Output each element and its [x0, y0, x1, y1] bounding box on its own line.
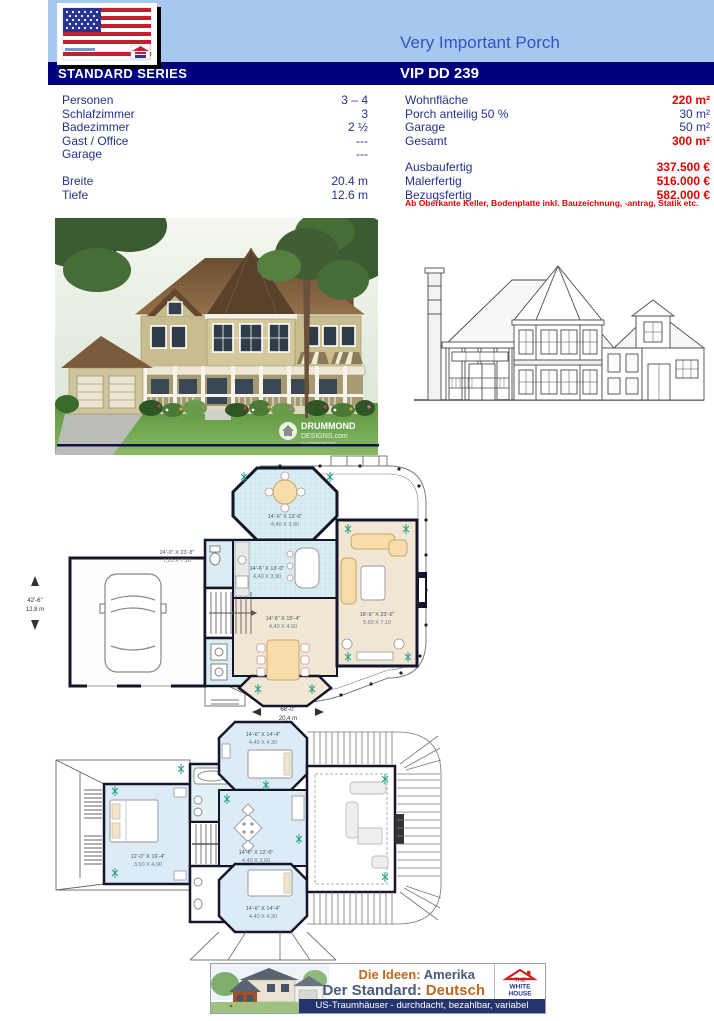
nook-dim-metric: 4,40 X 3,90 — [271, 522, 299, 528]
spec-row: Malerfertig516.000 € — [405, 175, 710, 189]
page-title: Very Important Porch — [330, 33, 630, 53]
series-label: STANDARD SERIES — [58, 62, 187, 85]
spec-value: 337.500 € — [657, 161, 710, 175]
series-bar: STANDARD SERIES VIP DD 239 — [48, 62, 714, 85]
master-dim-imperial: 12'-0" X 16'-4" — [131, 854, 166, 860]
kitchen-dim-metric: 4,40 X 3,90 — [253, 574, 281, 580]
dining-dim-metric: 4,40 X 4,60 — [269, 624, 297, 630]
footer-line1: Die Ideen: Amerika — [358, 967, 475, 982]
bedroom-top-dim-imperial: 14'-6" X 14'-4" — [246, 732, 281, 738]
watermark-line2: DESIGNS.com — [301, 433, 348, 440]
idea-value: Amerika — [421, 967, 475, 982]
footer-tagline: US-Traumhäuser - durchdacht, bezahlbar, … — [299, 999, 545, 1013]
nook-dim-imperial: 14'-6" X 13'-0" — [268, 514, 303, 520]
master-dim-metric: 3,60 X 4,90 — [134, 862, 162, 868]
spec-value: 220 m² — [672, 94, 710, 108]
spec-row: Schlafzimmer3 — [62, 108, 368, 122]
lower-roof-lines — [190, 932, 336, 960]
spec-label: Gesamt — [405, 135, 447, 149]
footer-line2: Der Standard: Deutsch — [322, 982, 485, 999]
dining-table-icon — [257, 640, 309, 680]
car-icon — [100, 574, 166, 672]
spec-row: Personen3 – 4 — [62, 94, 368, 108]
spec-row: Wohnfläche220 m² — [405, 94, 710, 108]
living-dim-imperial: 18'-6" X 23'-6" — [360, 612, 395, 618]
spec-value: 50 m² — [679, 121, 710, 135]
spec-value: 300 m² — [672, 135, 710, 149]
dining-dim-imperial: 14'-6" X 15'-4" — [266, 616, 301, 622]
spec-label: Garage — [405, 121, 445, 135]
spec-row: Breite20.4 m — [62, 175, 368, 189]
spec-value: --- — [356, 148, 368, 162]
us-flag-logo — [57, 3, 157, 65]
us-flag-icon — [57, 3, 157, 65]
spec-row: Garage--- — [62, 148, 368, 162]
bed-bottom-icon — [248, 870, 292, 896]
spec-row: Porch anteilig 50 %30 m² — [405, 108, 710, 122]
garage-dim-metric: 7,20 X 7,10 — [163, 558, 191, 564]
spec-row: Badezimmer2 ½ — [62, 121, 368, 135]
spec-label: Ausbaufertig — [405, 161, 472, 175]
watermark-line1: DRUMMOND — [301, 421, 356, 431]
spec-row: Garage50 m² — [405, 121, 710, 135]
spec-label: Porch anteilig 50 % — [405, 108, 508, 122]
spec-row: Ausbaufertig337.500 € — [405, 161, 710, 175]
width-imperial: 42'-6" — [27, 598, 42, 604]
standard-label: Der Standard: — [322, 982, 421, 999]
spec-row: Gast / Office--- — [62, 135, 368, 149]
mini-white-house-icon — [131, 45, 150, 59]
spec-label: Malerfertig — [405, 175, 462, 189]
length-imperial: 68'-0" — [280, 707, 295, 713]
width-dimension: 42'-6" 12,8 m — [26, 576, 44, 630]
floor-plan-level1: 24'-0" X 23'-8" 7,20 X 7,10 14'-6" X 13'… — [18, 444, 440, 726]
spec-label: Wohnfläche — [405, 94, 468, 108]
price-footnote: Ab Oberkante Keller, Bodenplatte inkl. B… — [405, 198, 710, 208]
garage-dim-imperial: 24'-0" X 23'-8" — [160, 550, 195, 556]
spec-label: Badezimmer — [62, 121, 129, 135]
brochure-page: Very Important Porch STANDARD SERIES VIP… — [0, 0, 714, 1021]
spec-value: 2 ½ — [348, 121, 368, 135]
front-elevation-drawing — [408, 256, 710, 410]
spec-value: 516.000 € — [657, 175, 710, 189]
logo-house: HOUSE — [508, 990, 532, 997]
spec-label: Schlafzimmer — [62, 108, 135, 122]
floor-plan-level2: 12'-0" X 16'-4" 3,60 X 4,90 14'-6" X 14'… — [52, 716, 457, 963]
house-rendering-illustration: DRUMMOND DESIGNS.com © COPYRIGHT — [55, 218, 378, 455]
white-house-logo: THE WHITE HOUSE — [494, 964, 545, 999]
bedroom-top-dim-metric: 4,40 X 4,30 — [249, 740, 277, 746]
spec-label: Gast / Office — [62, 135, 128, 149]
living-dim-metric: 5,60 X 7,10 — [363, 620, 391, 626]
spec-row: Tiefe12.6 m — [62, 189, 368, 203]
model-number: VIP DD 239 — [400, 62, 479, 85]
logo-white: WHITE — [510, 983, 532, 990]
kitchen-dim-imperial: 14'-6" X 13'-0" — [250, 566, 285, 572]
spec-value: --- — [356, 135, 368, 149]
idea-label: Die Ideen: — [358, 967, 420, 982]
bedroom-bottom-dim-metric: 4,40 X 4,30 — [249, 914, 277, 920]
spec-value: 12.6 m — [331, 189, 368, 203]
spec-table-left: Personen3 – 4 Schlafzimmer3 Badezimmer2 … — [62, 94, 368, 202]
spec-row: Gesamt300 m² — [405, 135, 710, 149]
spec-label: Personen — [62, 94, 113, 108]
fireplace-upper — [395, 814, 404, 844]
width-metric: 12,8 m — [26, 607, 44, 613]
spec-label: Breite — [62, 175, 93, 189]
footer-banner: Die Ideen: Amerika Der Standard: Deutsch… — [210, 963, 546, 1014]
flag-microtext — [65, 48, 95, 51]
spec-value: 30 m² — [679, 108, 710, 122]
spec-value: 3 — [361, 108, 368, 122]
spec-label: Tiefe — [62, 189, 88, 203]
white-house-logo-icon: THE WHITE HOUSE — [502, 967, 538, 997]
spec-value: 20.4 m — [331, 175, 368, 189]
spec-value: 3 – 4 — [341, 94, 368, 108]
hall-dim-imperial: 14'-6" X 12'-0" — [239, 850, 274, 856]
bedroom-bottom-dim-imperial: 14'-6" X 14'-4" — [246, 906, 281, 912]
spec-table-right: Wohnfläche220 m² Porch anteilig 50 %30 m… — [405, 94, 710, 202]
spec-label: Garage — [62, 148, 102, 162]
standard-value: Deutsch — [422, 982, 485, 999]
